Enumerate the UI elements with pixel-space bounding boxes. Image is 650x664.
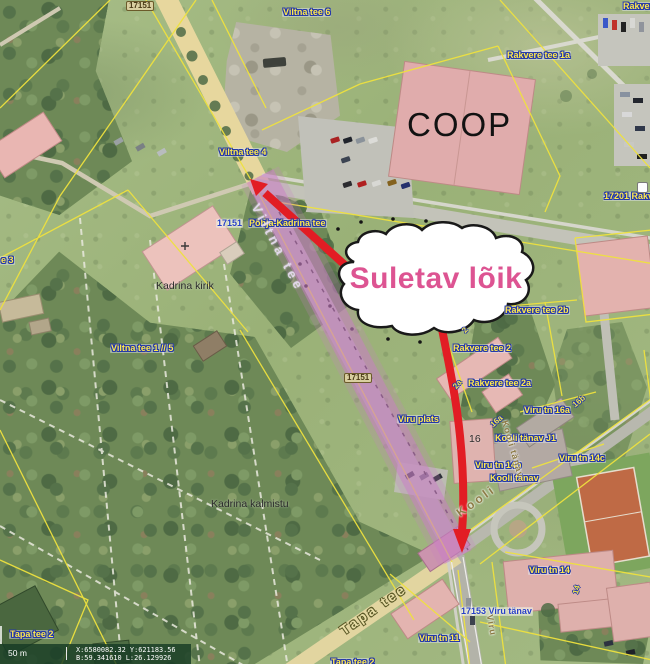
map-edge-mark <box>0 626 2 644</box>
building-viru-14 <box>503 550 620 637</box>
building-chapel <box>193 331 226 361</box>
building-school-right <box>576 236 650 316</box>
scale-label: 50 m <box>8 648 27 658</box>
building-rakvere-2a <box>482 374 523 413</box>
coordinates-readout: X:6580082.32 Y:621183.56 B:59.341610 L:2… <box>76 646 176 662</box>
building-coop <box>389 61 536 194</box>
map-canvas[interactable]: 17151Viltna tee 6RakvereRakvere tee 1aCO… <box>0 0 650 664</box>
road-sign-icon <box>637 182 648 193</box>
coords-bl: B:59.341610 L:26.129926 <box>76 654 176 662</box>
cemetery-paths <box>0 218 320 664</box>
map-graphics <box>0 0 650 664</box>
statusbar: 50 m X:6580082.32 Y:621183.56 B:59.34161… <box>0 644 191 664</box>
building-church <box>142 206 238 290</box>
building-left-mid-2 <box>29 318 51 335</box>
statusbar-divider <box>66 647 67 660</box>
building-left-top <box>0 112 62 178</box>
coords-xy: X:6580082.32 Y:621183.56 <box>76 646 176 654</box>
building-bottom-right <box>606 582 650 642</box>
callout-cloud <box>339 222 533 334</box>
bus <box>263 57 287 68</box>
